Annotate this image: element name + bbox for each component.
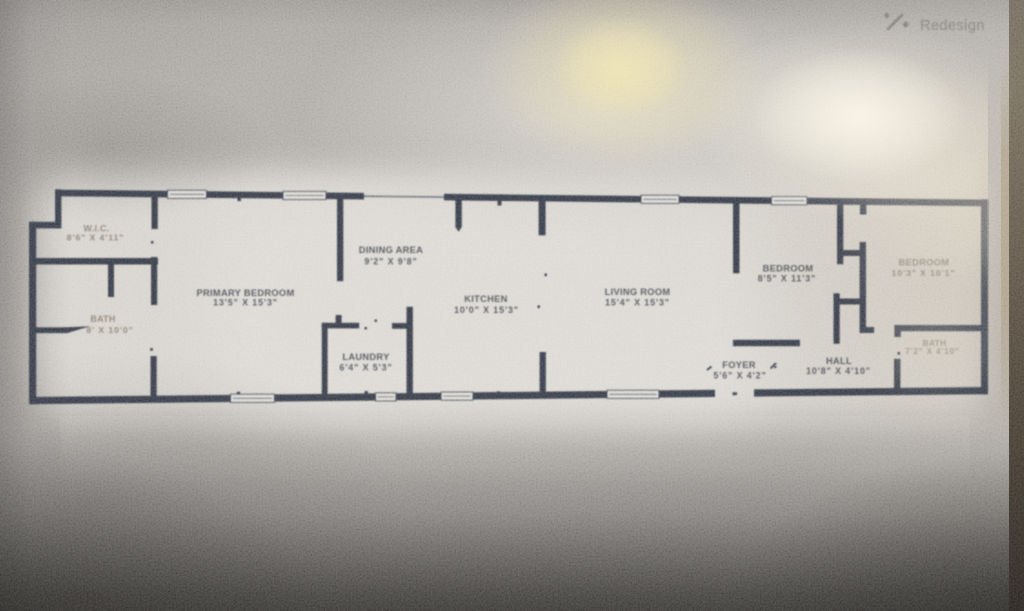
svg-text:BEDROOM: BEDROOM <box>899 258 950 268</box>
svg-text:FOYER: FOYER <box>722 360 756 370</box>
svg-text:HALL: HALL <box>826 356 852 366</box>
svg-text:DINING AREA: DINING AREA <box>359 245 423 255</box>
svg-text:BATH: BATH <box>90 314 115 324</box>
svg-text:PRIMARY BEDROOM: PRIMARY BEDROOM <box>197 288 295 298</box>
svg-text:13'5" X 15'3": 13'5" X 15'3" <box>213 298 278 308</box>
svg-text:9'2" X 9'8": 9'2" X 9'8" <box>364 257 417 267</box>
svg-text:LIVING ROOM: LIVING ROOM <box>605 287 671 297</box>
svg-text:10'0" X 15'3": 10'0" X 15'3" <box>454 305 519 315</box>
svg-text:6'4" X 5'3": 6'4" X 5'3" <box>339 363 392 373</box>
svg-text:8' X 10'0": 8' X 10'0" <box>86 325 133 335</box>
svg-text:7'2" X 4'10": 7'2" X 4'10" <box>905 347 959 356</box>
svg-text:Redesign: Redesign <box>920 18 985 34</box>
svg-text:LAUNDRY: LAUNDRY <box>342 352 390 362</box>
svg-text:8'5" X 11'3": 8'5" X 11'3" <box>758 274 816 284</box>
svg-text:5'6" X 4'2": 5'6" X 4'2" <box>713 371 766 381</box>
svg-text:15'4" X 15'3": 15'4" X 15'3" <box>605 298 670 308</box>
svg-text:BEDROOM: BEDROOM <box>763 264 814 274</box>
svg-text:10'3" X 10'1": 10'3" X 10'1" <box>892 268 956 278</box>
svg-text:8'6" X 4'11": 8'6" X 4'11" <box>67 233 124 243</box>
svg-text:10'8" X 4'10": 10'8" X 4'10" <box>806 366 871 376</box>
svg-text:KITCHEN: KITCHEN <box>464 294 507 304</box>
